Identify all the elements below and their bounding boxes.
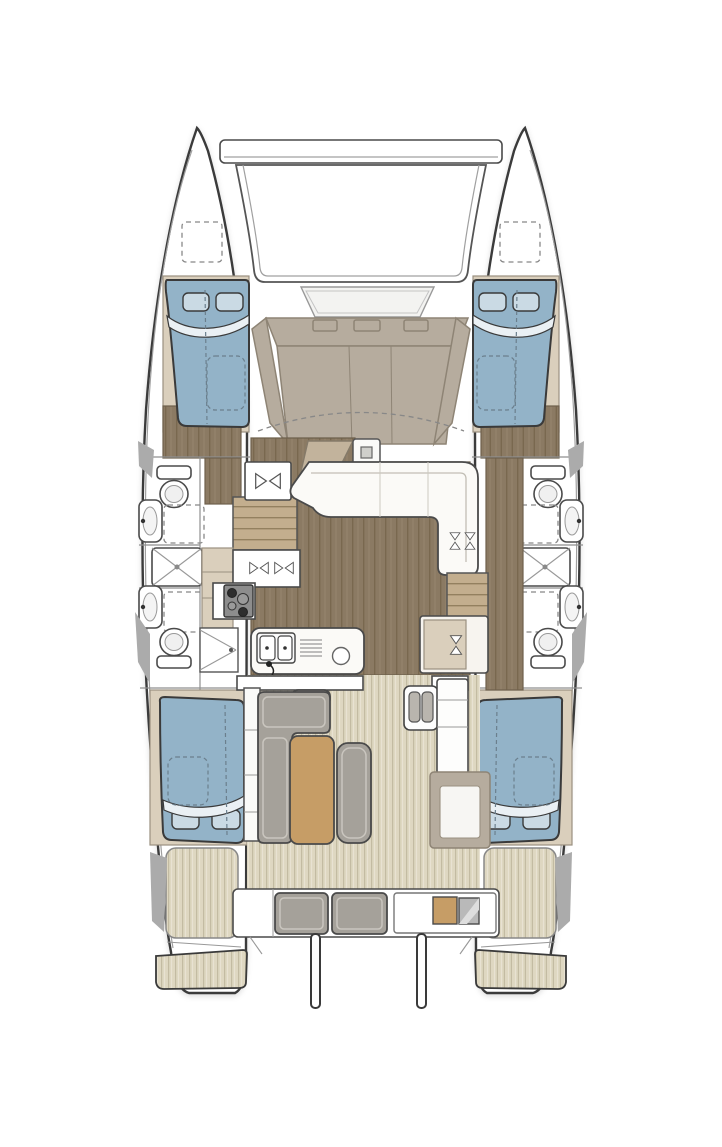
crossbeam	[220, 140, 502, 163]
forward-cockpit-bench	[252, 318, 470, 444]
mast-post-core	[361, 447, 372, 458]
door-panel	[245, 462, 291, 500]
stairs-starboard-hull	[447, 573, 488, 619]
toilet-seat	[165, 634, 183, 651]
faucet-dot	[141, 605, 145, 609]
drain-dot	[283, 646, 287, 650]
backrest-notch	[313, 320, 337, 331]
aft-bench-group	[233, 889, 499, 937]
toilet-tank	[157, 656, 191, 668]
burner	[228, 602, 236, 610]
cooktop	[224, 585, 253, 617]
sliding-door-panel	[422, 692, 433, 722]
toilet-tank	[157, 466, 191, 479]
stairs-port-hull	[233, 497, 297, 550]
nav-cabinet	[420, 616, 488, 673]
galley-upper-unit	[233, 550, 300, 587]
bench-cushion	[275, 893, 328, 934]
port-cabin-door-unit	[245, 462, 291, 500]
shower-drain	[175, 565, 180, 570]
toilet-seat	[165, 486, 183, 503]
port-head-folding-door	[200, 628, 238, 672]
trampoline	[236, 165, 486, 282]
burner	[239, 608, 248, 617]
sliding-door-panel	[409, 692, 420, 722]
davit-post	[311, 934, 320, 1008]
grill-wood-board	[433, 897, 457, 924]
drain-dot	[265, 646, 269, 650]
stern-gunwale-wedge	[150, 852, 167, 932]
sliding-door	[404, 686, 438, 730]
catamaran-floor-plan	[0, 0, 722, 1147]
starboard-corridor-wood	[486, 458, 523, 690]
aft-deck-teak	[166, 848, 238, 938]
davit-post	[417, 934, 426, 1008]
galley-island	[251, 628, 364, 675]
door-knob-dot	[229, 648, 233, 652]
burner	[228, 589, 237, 598]
cockpit-table	[290, 736, 334, 844]
transom-rail-line	[250, 937, 472, 954]
backrest-notch	[404, 320, 428, 331]
faucet-dot	[141, 519, 145, 523]
floor-plan-canvas	[0, 0, 722, 1147]
helm-seat-inset	[440, 786, 480, 838]
burner	[238, 594, 249, 605]
bench-cushion	[332, 893, 387, 934]
swim-platform	[156, 950, 247, 989]
pillow	[183, 293, 209, 311]
backrest-notch	[354, 320, 380, 331]
nav-cabinet-front	[424, 620, 466, 669]
bench-seat	[277, 346, 457, 444]
round-basin	[333, 648, 350, 665]
pillow	[216, 293, 243, 311]
